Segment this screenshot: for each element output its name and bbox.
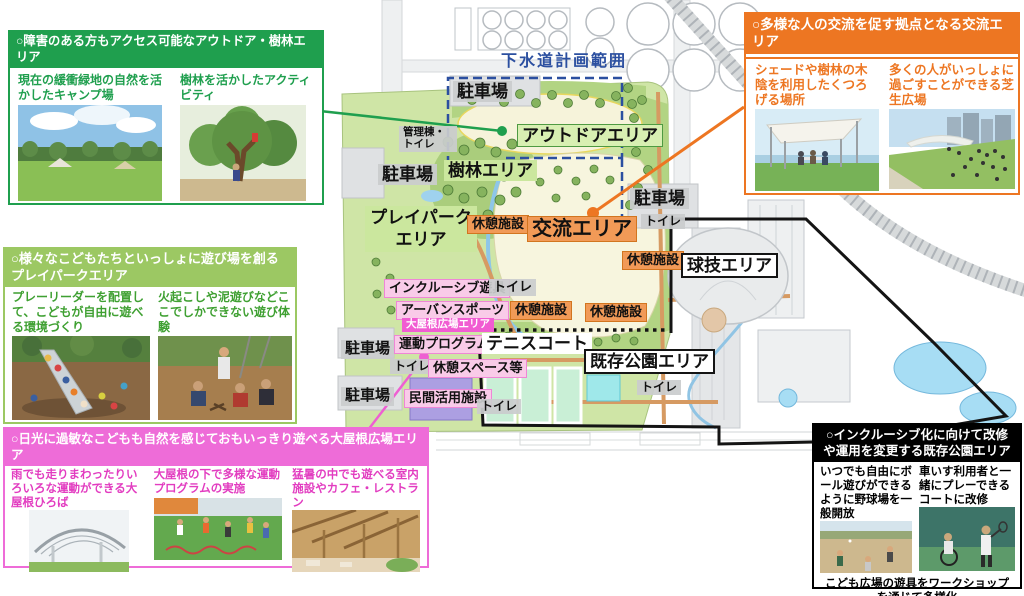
map-label-playpark-area: プレイパークエリア [365,206,477,252]
map-label-exercise-program: 運動プログラム [394,335,495,354]
caption-tree-activity: 樹林を活かしたアクティビティ [180,73,314,105]
caption-wheelchair-court: 車いす利用者と一緒にプレーできるコートに改修 [919,465,1015,507]
caption-playleader: プレーリーダーを配置して、こどもが自由に遊べる環境づくり [12,290,150,336]
map-label-parking-east: 駐車場 [630,188,689,209]
map-label-rest-space: 休憩スペース等 [428,359,527,378]
photo-shade-structure [755,109,879,191]
photo-tree-activity [180,105,306,201]
map-label-existing-park-area: 既存公園エリア [584,349,715,374]
callout-exchange: ○多様な人の交流を促す拠点となる交流エリア シェードや樹林の木陰を利用したくつろ… [744,12,1020,195]
map-label-rest-facility-3: 休憩施設 [510,301,572,320]
map-label-rest-facility-4: 休憩施設 [585,303,647,322]
map-label-ball-game-area: 球技エリア [681,253,778,278]
callout-playpark: ○様々なこどもたちといっしょに遊び場を創る プレイパークエリア プレーリーダーを… [3,247,297,424]
caption-bigroof-plaza: 雨でも走りまわったりいろいろな運動ができる大屋根ひろば [11,468,148,510]
map-label-rest-facility-2: 休憩施設 [622,251,684,270]
caption-camp: 現在の緩衝緑地の自然を活かしたキャンプ場 [18,73,168,105]
map-label-parking-west: 駐車場 [378,164,437,185]
photo-campground [18,105,162,201]
map-label-sewer-plan-range: 下水道計画範囲 [497,52,631,72]
photo-mud-slide [12,336,150,420]
callout-big-roof-title: ○日光に過敏なこどもも自然を感じておもいっきり遊べる大屋根広場エリア [5,429,427,466]
caption-shade-rest: シェードや樹林の木陰を利用したくつろげる場所 [755,63,879,109]
caption-playground-workshop: こども広場の遊具をワークショップを通じて多様化 [824,577,1010,596]
caption-exercise-program: 大屋根の下で多様な運動プログラムの実施 [154,468,287,498]
map-label-toilet-center: トイレ [489,279,536,296]
map-label-exchange-area: 交流エリア [527,216,637,242]
callout-big-roof-plaza: ○日光に過敏なこどもも自然を感じておもいっきり遊べる大屋根広場エリア 雨でも走り… [3,427,429,568]
photo-baseball-field [820,521,912,573]
map-label-outdoor-area: アウトドアエリア [517,124,663,147]
photo-lawn-crowd [889,109,1015,189]
photo-exercise-under-roof [154,498,282,560]
photo-fire-making [158,336,292,420]
photo-wheelchair-tennis [919,507,1015,571]
map-label-tennis-court: テニスコート [482,333,592,354]
map-label-admin-toilet: 管理棟・トイレ [399,126,457,152]
photo-big-roof [29,510,129,572]
map-label-parking-sw1: 駐車場 [341,340,394,359]
caption-indoor-facility: 猛暑の中でも遊べる室内施設やカフェ・レストラン [292,468,421,510]
map-label-toilet-existing: トイレ [637,380,681,395]
caption-baseball-open: いつでも自由にボール遊びができるように野球場を一般開放 [820,465,912,521]
callout-playpark-title: ○様々なこどもたちといっしょに遊び場を創る プレイパークエリア [5,249,295,287]
caption-lawn-plaza: 多くの人がいっしょに過ごすことができる芝生広場 [889,63,1015,109]
callout-outdoor-forest-title: ○障害のある方もアクセス可能なアウトドア・樹林エリア [10,32,322,68]
caption-fire-mud-play: 火起こしや泥遊びなどここでしかできない遊び体験 [158,290,292,336]
map-label-forest-area: 樹林エリア [444,160,537,181]
callout-existing-park-title: ○インクルーシブ化に向けて改修や運用を変更する既存公園エリア [814,425,1020,462]
map-label-toilet-east: トイレ [641,214,685,229]
map-label-toilet-south: トイレ [477,399,521,414]
park-plan-slide: 下水道計画範囲 駐車場 管理棟・トイレ アウトドアエリア 樹林エリア 駐車場 プ… [0,0,1024,596]
callout-outdoor-forest: ○障害のある方もアクセス可能なアウトドア・樹林エリア 現在の緩衝緑地の自然を活か… [8,30,324,205]
callout-exchange-title: ○多様な人の交流を促す拠点となる交流エリア [746,14,1018,57]
map-label-parking-sw2: 駐車場 [341,387,394,406]
photo-indoor-cafe [292,510,420,572]
map-label-rest-facility-1: 休憩施設 [467,215,529,234]
callout-existing-park: ○インクルーシブ化に向けて改修や運用を変更する既存公園エリア いつでも自由にボー… [812,423,1022,589]
map-label-bigroof-plaza-area: 大屋根広場エリア [402,318,494,332]
map-label-parking-north: 駐車場 [453,81,512,102]
map-label-urban-sports: アーバンスポーツ [396,301,509,320]
